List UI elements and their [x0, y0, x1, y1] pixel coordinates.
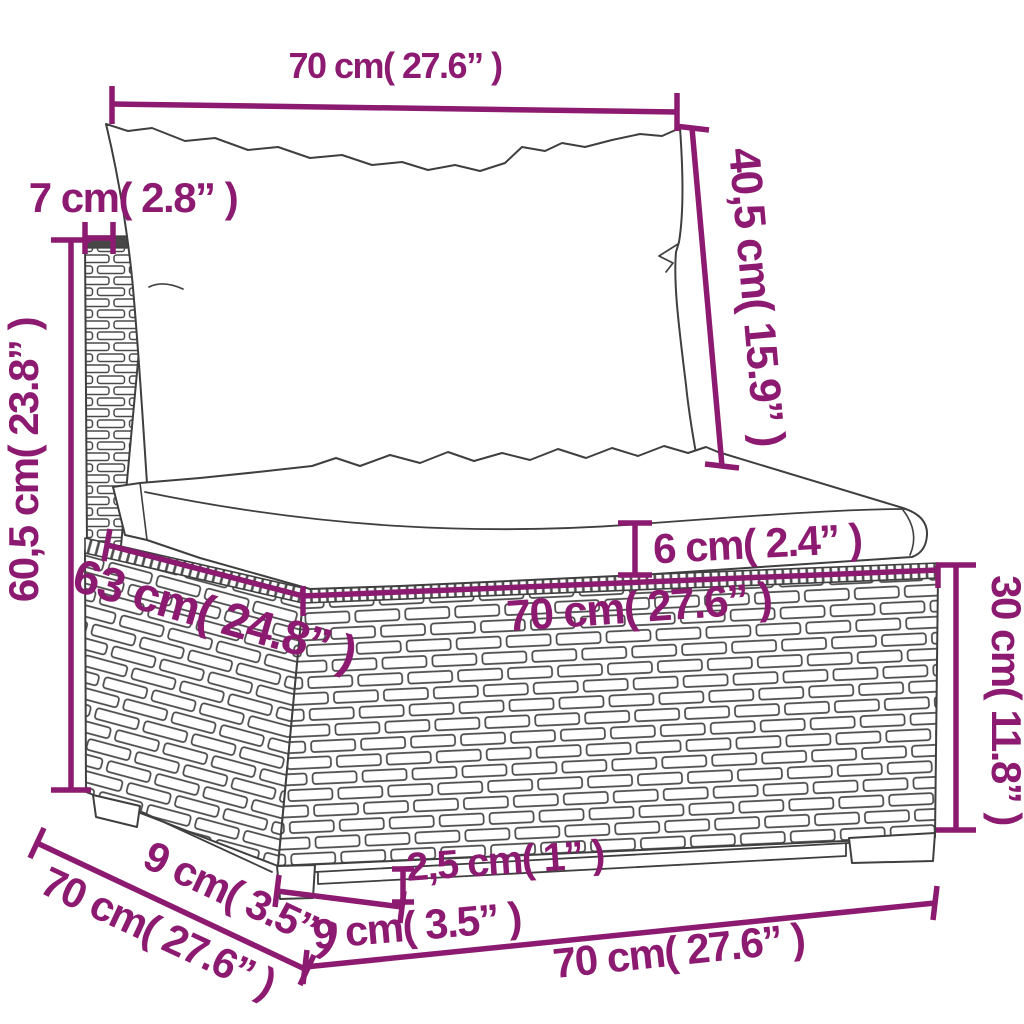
label-seat-cushion-thickness: 6 cm( 2.4” ) — [652, 515, 863, 573]
label-back-panel-thickness: 7 cm( 2.8” ) — [29, 174, 237, 221]
dimension-diagram: 70 cm( 27.6” ) 7 cm( 2.8” ) 40,5 cm( 15.… — [0, 0, 1024, 1024]
label-base-front-width: 70 cm( 27.6” ) — [551, 914, 807, 987]
dim-back-cushion-width — [112, 86, 677, 131]
label-total-height: 60,5 cm( 23.8” ) — [0, 318, 47, 602]
sofa-drawing — [84, 124, 938, 899]
label-base-height: 30 cm( 11.8” ) — [983, 575, 1024, 825]
label-back-cushion-height: 40,5 cm( 15.9” ) — [719, 146, 794, 448]
dim-base-height — [936, 565, 976, 830]
leg-front-right — [849, 833, 935, 863]
label-back-cushion-width: 70 cm( 27.6” ) — [288, 45, 502, 86]
